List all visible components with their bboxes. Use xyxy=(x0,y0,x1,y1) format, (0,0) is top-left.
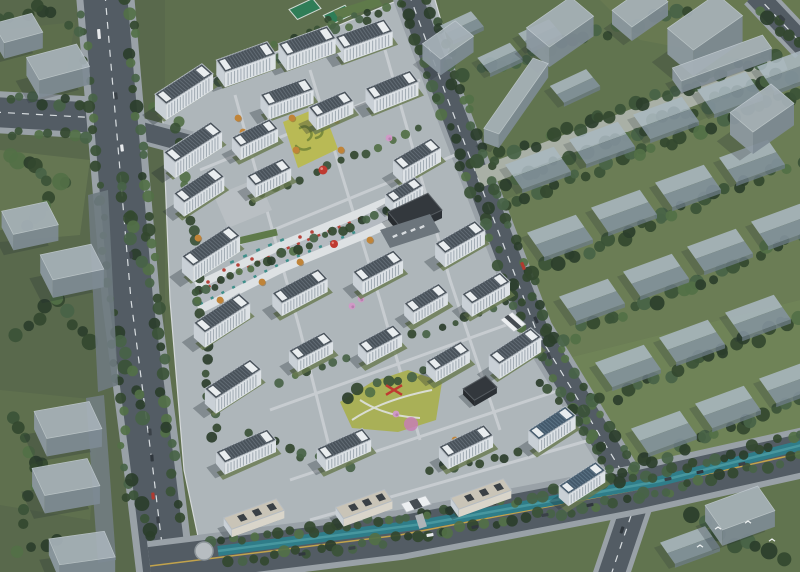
tree xyxy=(453,320,459,326)
tree xyxy=(763,443,772,452)
tree xyxy=(495,246,503,254)
tree xyxy=(568,368,579,379)
tree xyxy=(705,123,717,135)
tree xyxy=(596,442,606,452)
tree xyxy=(558,346,566,354)
autumn-tree xyxy=(259,279,266,286)
tree xyxy=(749,465,757,473)
tree xyxy=(514,497,522,505)
tree xyxy=(145,212,154,221)
tree xyxy=(683,507,700,524)
tree xyxy=(166,469,176,479)
tree xyxy=(157,367,170,380)
tree xyxy=(451,134,461,144)
tree xyxy=(130,21,139,30)
tree xyxy=(115,393,126,404)
tree xyxy=(276,248,286,258)
tree xyxy=(442,527,453,538)
tree xyxy=(537,491,549,503)
tree xyxy=(785,451,795,461)
tree xyxy=(351,383,363,395)
tree xyxy=(648,473,658,483)
tree xyxy=(119,347,131,359)
tree xyxy=(131,74,140,83)
tree xyxy=(693,475,704,486)
tree xyxy=(412,531,424,543)
tree xyxy=(26,542,36,552)
tree xyxy=(11,545,24,558)
car xyxy=(156,516,160,523)
tree xyxy=(317,544,326,553)
tree xyxy=(23,321,34,332)
tree xyxy=(345,223,355,233)
tree xyxy=(646,144,655,153)
sphere-highlight xyxy=(332,242,334,244)
tree xyxy=(479,518,489,528)
tree xyxy=(543,334,556,347)
aerial-masterplan-render xyxy=(0,0,800,572)
tree xyxy=(117,442,124,449)
tree xyxy=(415,125,422,132)
tree xyxy=(217,536,225,544)
tree xyxy=(365,387,375,397)
tree xyxy=(139,180,150,191)
tree xyxy=(739,450,749,460)
tree xyxy=(637,487,649,499)
tree xyxy=(295,176,303,184)
tree xyxy=(634,149,646,161)
tree xyxy=(465,105,473,113)
tree xyxy=(127,366,138,377)
tree xyxy=(579,383,587,391)
tree xyxy=(760,10,775,25)
tree xyxy=(651,490,659,498)
tree xyxy=(407,372,417,382)
tree xyxy=(322,232,328,238)
tree xyxy=(455,161,465,171)
tree xyxy=(695,279,706,290)
tree xyxy=(404,532,412,540)
tree xyxy=(153,302,166,315)
tree xyxy=(521,512,532,523)
tree xyxy=(374,10,382,18)
tree xyxy=(169,450,180,461)
tree xyxy=(581,172,591,182)
tree xyxy=(459,96,468,105)
tree xyxy=(9,152,26,169)
tree xyxy=(425,467,433,475)
tree xyxy=(370,211,379,220)
tree xyxy=(362,150,371,159)
tree xyxy=(391,531,401,541)
tree xyxy=(337,157,344,164)
tree xyxy=(67,319,78,330)
tree xyxy=(309,234,318,243)
tree xyxy=(518,298,526,306)
tree xyxy=(139,151,147,159)
car xyxy=(150,454,154,461)
tree xyxy=(45,7,56,18)
autumn-tree xyxy=(297,259,304,266)
tree xyxy=(160,422,171,433)
tree xyxy=(750,541,761,552)
cafe-umbrella xyxy=(236,263,240,267)
tree xyxy=(189,225,200,236)
tree xyxy=(156,342,165,351)
tree xyxy=(547,127,561,141)
tree xyxy=(500,454,509,463)
tree xyxy=(560,122,573,135)
red-sphere-sculpture xyxy=(319,166,328,175)
cafe-umbrella xyxy=(310,230,314,234)
tree xyxy=(374,144,382,152)
tree xyxy=(603,111,616,124)
tree xyxy=(514,242,523,251)
tree xyxy=(337,16,343,22)
tree xyxy=(342,354,350,362)
tree xyxy=(549,374,557,382)
corner-plaza xyxy=(195,542,213,560)
tree xyxy=(447,123,455,131)
tree xyxy=(666,462,677,473)
tree xyxy=(407,329,416,338)
tree xyxy=(662,488,671,497)
render-canvas xyxy=(0,0,800,572)
tree xyxy=(134,496,149,511)
tree xyxy=(140,514,149,523)
tree xyxy=(690,203,701,214)
red-sphere-sculpture xyxy=(330,240,338,248)
tree xyxy=(650,296,665,311)
tree xyxy=(212,424,221,433)
car xyxy=(151,492,155,499)
tree xyxy=(507,145,522,160)
tree xyxy=(461,172,471,182)
tree xyxy=(404,18,415,29)
tree xyxy=(12,421,25,434)
tree xyxy=(194,297,202,305)
tree xyxy=(247,265,254,272)
blossom-tree-core xyxy=(388,137,391,140)
tree xyxy=(773,434,782,443)
tree xyxy=(131,112,140,121)
tree xyxy=(556,510,567,521)
tree xyxy=(202,354,213,365)
tree xyxy=(542,323,552,333)
tree xyxy=(475,459,484,468)
tree xyxy=(609,430,621,442)
tree xyxy=(525,266,539,280)
tree xyxy=(332,545,344,557)
tree xyxy=(504,221,512,229)
tree xyxy=(672,364,685,377)
tree xyxy=(679,444,691,456)
tree xyxy=(97,182,104,189)
tree xyxy=(566,392,575,401)
tree xyxy=(545,358,553,366)
tree xyxy=(762,462,774,474)
tree xyxy=(212,284,219,291)
tree xyxy=(174,500,183,509)
tree xyxy=(152,327,164,339)
tree xyxy=(64,21,73,30)
tree xyxy=(622,450,631,459)
tree xyxy=(629,474,638,483)
tree xyxy=(117,182,126,191)
tree xyxy=(613,395,623,405)
autumn-tree xyxy=(195,235,202,242)
tree xyxy=(170,123,181,134)
tree xyxy=(491,454,499,462)
tree xyxy=(399,1,406,8)
tree xyxy=(586,435,595,444)
tree xyxy=(217,276,225,284)
tree xyxy=(597,456,606,465)
tree xyxy=(249,554,258,563)
tree xyxy=(15,127,23,135)
tree xyxy=(41,175,52,186)
tree xyxy=(69,130,81,142)
tree xyxy=(15,92,23,100)
tree xyxy=(402,514,410,522)
tree xyxy=(435,109,447,121)
tree xyxy=(123,7,136,20)
tree xyxy=(470,154,484,168)
tree xyxy=(33,313,46,326)
tree xyxy=(52,173,69,190)
tree xyxy=(151,253,159,261)
tree xyxy=(551,256,566,271)
tree xyxy=(408,33,420,45)
tree xyxy=(636,97,650,111)
tree xyxy=(18,519,28,529)
tree xyxy=(527,493,538,504)
tree xyxy=(60,127,71,138)
tree xyxy=(80,131,92,143)
tree xyxy=(260,556,269,565)
tree xyxy=(383,376,394,387)
tree xyxy=(135,124,146,135)
tree xyxy=(364,9,371,16)
tree xyxy=(506,515,518,527)
tree xyxy=(542,384,552,394)
tree xyxy=(422,330,430,338)
tree xyxy=(43,129,52,138)
cafe-umbrella xyxy=(298,235,302,239)
blossom-tree-core xyxy=(395,413,398,416)
tree xyxy=(754,445,764,455)
tree xyxy=(116,191,127,202)
tree xyxy=(439,324,446,331)
tree xyxy=(596,411,604,419)
tree xyxy=(488,184,500,196)
tree xyxy=(36,99,47,110)
tree xyxy=(577,405,590,418)
tree xyxy=(267,256,276,265)
tree xyxy=(537,309,548,320)
tree xyxy=(474,195,482,203)
tree xyxy=(125,473,138,486)
tree xyxy=(136,256,148,268)
tree xyxy=(278,545,290,557)
tree xyxy=(776,460,784,468)
tree xyxy=(761,543,778,560)
tree xyxy=(127,220,140,233)
tree xyxy=(77,11,85,19)
tree xyxy=(401,130,410,139)
tree xyxy=(309,528,319,538)
tree xyxy=(263,530,271,538)
tree xyxy=(135,400,145,410)
tree xyxy=(557,334,569,346)
tree xyxy=(570,169,579,178)
tree xyxy=(373,378,382,387)
tree xyxy=(424,7,436,19)
tree xyxy=(536,379,544,387)
tree xyxy=(555,387,566,398)
tree xyxy=(74,26,84,36)
tree xyxy=(561,355,569,363)
tree xyxy=(683,479,691,487)
tree xyxy=(373,517,383,527)
autumn-tree xyxy=(235,115,242,122)
tree xyxy=(593,113,603,123)
tree xyxy=(130,100,144,114)
tree xyxy=(175,512,185,522)
tree xyxy=(432,94,441,103)
tree xyxy=(128,85,136,93)
tree xyxy=(509,301,518,310)
tree xyxy=(646,456,658,468)
tree xyxy=(139,142,148,151)
sphere-highlight xyxy=(320,167,323,170)
tree xyxy=(306,242,313,249)
tree xyxy=(497,198,509,210)
tree xyxy=(662,452,674,464)
tree xyxy=(296,448,306,458)
tree xyxy=(90,145,101,156)
tree xyxy=(492,260,503,271)
tree xyxy=(134,389,144,399)
tree xyxy=(272,527,283,538)
tree xyxy=(382,3,391,12)
tree xyxy=(470,128,482,140)
car xyxy=(148,428,152,435)
tree xyxy=(126,58,136,68)
tree xyxy=(145,278,155,288)
tree xyxy=(147,239,157,249)
tree xyxy=(153,294,162,303)
tree xyxy=(270,550,279,559)
tree xyxy=(605,465,614,474)
tree xyxy=(607,498,618,509)
tree xyxy=(119,406,128,415)
tree xyxy=(568,251,580,263)
tree xyxy=(613,476,625,488)
tree xyxy=(528,292,537,301)
tree xyxy=(192,288,200,296)
autumn-tree xyxy=(338,147,345,154)
flower-garden xyxy=(404,417,418,431)
tree xyxy=(254,261,260,267)
tree xyxy=(34,130,43,139)
tree xyxy=(623,495,631,503)
tree xyxy=(535,300,545,310)
tree xyxy=(145,531,155,541)
tree xyxy=(583,247,595,259)
tree xyxy=(142,190,154,202)
tree xyxy=(168,439,177,448)
tree xyxy=(454,148,465,159)
tree xyxy=(131,29,140,38)
tree xyxy=(482,202,495,215)
tree xyxy=(688,458,697,467)
tree xyxy=(135,411,150,426)
tree xyxy=(83,100,95,112)
tree xyxy=(345,23,353,31)
tree xyxy=(295,247,303,255)
autumn-tree xyxy=(367,237,374,244)
autumn-tree xyxy=(217,297,224,304)
tree xyxy=(158,395,171,408)
tree xyxy=(61,94,70,103)
tree xyxy=(531,142,542,153)
tree xyxy=(84,41,93,50)
tree xyxy=(394,377,402,385)
tree xyxy=(89,113,98,122)
tree xyxy=(379,540,388,549)
tree xyxy=(238,556,248,566)
tree xyxy=(714,469,725,480)
blossom-tree-core xyxy=(351,305,354,308)
tree xyxy=(166,487,176,497)
tree xyxy=(726,450,736,460)
tree xyxy=(159,354,170,365)
tree xyxy=(490,156,499,165)
tree xyxy=(548,483,559,494)
tree xyxy=(270,41,277,48)
tree xyxy=(669,4,684,19)
tree xyxy=(18,504,29,515)
tree xyxy=(285,444,295,454)
tree xyxy=(238,537,246,545)
tree xyxy=(649,89,660,100)
tree xyxy=(455,68,470,83)
autumn-tree xyxy=(293,147,300,154)
tree xyxy=(222,556,233,567)
tree xyxy=(594,393,605,404)
tree xyxy=(629,461,640,472)
tree xyxy=(236,268,243,275)
tree xyxy=(474,182,484,192)
tree xyxy=(385,516,394,525)
tree xyxy=(519,193,530,204)
tree xyxy=(206,432,217,443)
autumn-tree xyxy=(289,115,296,122)
tree xyxy=(138,172,147,181)
tree xyxy=(285,526,294,535)
tree xyxy=(120,464,128,472)
tree xyxy=(454,521,465,532)
tree xyxy=(579,426,589,436)
tree xyxy=(60,304,74,318)
tree xyxy=(777,552,791,566)
tree xyxy=(532,507,543,518)
cafe-umbrella xyxy=(250,257,254,261)
tree xyxy=(355,15,363,23)
tree xyxy=(570,334,581,345)
tree xyxy=(8,328,22,342)
